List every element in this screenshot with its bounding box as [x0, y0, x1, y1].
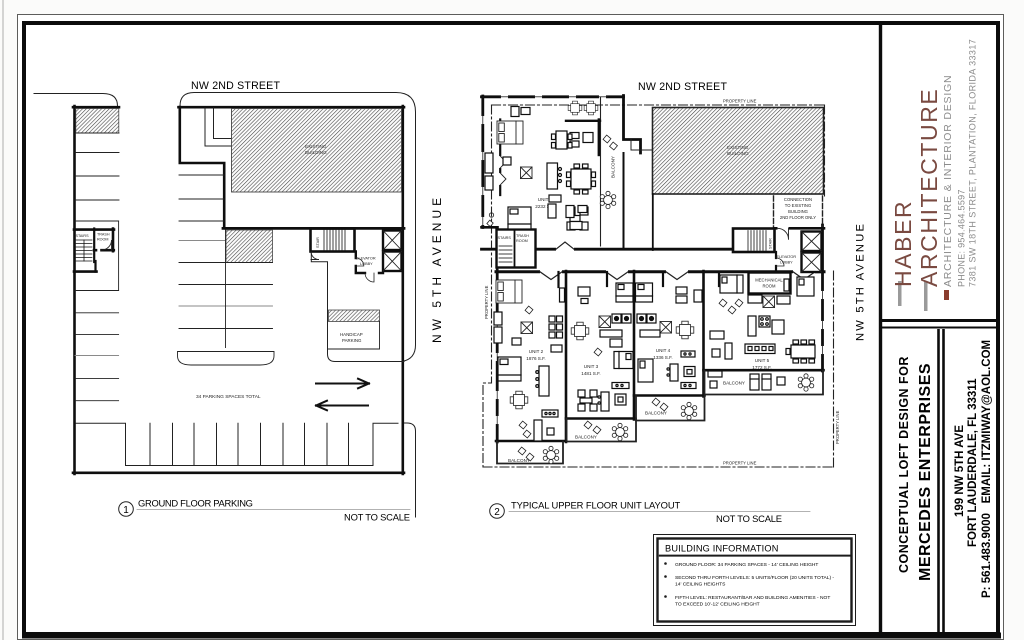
svg-text:ROOM: ROOM: [762, 284, 776, 289]
svg-text:NOT TO SCALE: NOT TO SCALE: [344, 512, 410, 523]
svg-text:199 NW 5TH AVE: 199 NW 5TH AVE: [954, 425, 966, 517]
svg-text:BUILDING: BUILDING: [727, 151, 749, 156]
svg-text:1336 S.F.: 1336 S.F.: [653, 355, 672, 360]
svg-text:2ND FLOOR ONLY: 2ND FLOOR ONLY: [780, 215, 816, 220]
svg-text:2: 2: [494, 507, 500, 518]
svg-text:7381 SW 18TH STREET, PLANTATIO: 7381 SW 18TH STREET, PLANTATION, FLORIDA…: [968, 39, 978, 287]
svg-text:P: 561.483.9000 EMAIL: ITZMI: P: 561.483.9000 EMAIL: ITZMIWAY@AOL.COM: [981, 340, 993, 598]
svg-text:ROOM: ROOM: [97, 238, 108, 242]
svg-text:STAIR: STAIR: [316, 237, 320, 248]
svg-text:SECOND THRU FORTH LEVELS: 5 UN: SECOND THRU FORTH LEVELS: 5 UNITS/FLOOR …: [675, 575, 834, 581]
svg-text:PROPERTY LINE: PROPERTY LINE: [723, 461, 757, 466]
svg-text:ELEVATOR: ELEVATOR: [356, 257, 376, 261]
svg-text:HANDICAP: HANDICAP: [340, 332, 363, 337]
svg-text:MECHANICAL: MECHANICAL: [755, 278, 783, 283]
svg-text:14' CEILING HEIGHTS: 14' CEILING HEIGHTS: [675, 581, 726, 587]
svg-text:1772 S.F.: 1772 S.F.: [752, 365, 771, 370]
svg-text:TO EXISTING: TO EXISTING: [785, 203, 811, 208]
svg-text:GROUND FLOOR PARKING: GROUND FLOOR PARKING: [138, 498, 253, 509]
svg-text:EXISTING: EXISTING: [727, 145, 749, 150]
svg-text:TO EXCEED 10'-12' CEILING HEIG: TO EXCEED 10'-12' CEILING HEIGHT: [675, 601, 760, 607]
svg-text:BALCONY: BALCONY: [723, 381, 745, 386]
svg-text:34 PARKING SPACES TOTAL: 34 PARKING SPACES TOTAL: [196, 394, 261, 400]
svg-text:UNIT 3: UNIT 3: [584, 364, 599, 369]
svg-text:FIFTH LEVEL: RESTAURANT/BAR AN: FIFTH LEVEL: RESTAURANT/BAR AND BUILDING…: [675, 595, 830, 601]
svg-text:1876 S.F.: 1876 S.F.: [526, 356, 545, 361]
svg-text:MERCEDES ENTERPRISES: MERCEDES ENTERPRISES: [917, 363, 934, 581]
svg-text:CONNECTION: CONNECTION: [784, 197, 812, 202]
svg-text:PROPERTY LINE: PROPERTY LINE: [723, 99, 757, 104]
svg-text:1481 S.F.: 1481 S.F.: [581, 371, 600, 376]
svg-text:NOT TO SCALE: NOT TO SCALE: [716, 513, 782, 524]
svg-text:BUILDING INFORMATION: BUILDING INFORMATION: [665, 544, 779, 554]
svg-text:LOBBY: LOBBY: [360, 262, 373, 266]
svg-text:NW 5TH AVENUE: NW 5TH AVENUE: [855, 222, 867, 341]
svg-text:NW 2ND STREET: NW 2ND STREET: [191, 80, 280, 92]
svg-text:STAIR: STAIR: [769, 238, 773, 249]
svg-text:TRASH: TRASH: [516, 234, 529, 238]
svg-text:STAIRS: STAIRS: [76, 234, 90, 238]
svg-text:FORT LAUDERDALE, FL 33311: FORT LAUDERDALE, FL 33311: [967, 378, 979, 547]
svg-text:1: 1: [123, 505, 129, 516]
svg-text:STAIRS: STAIRS: [498, 236, 512, 240]
svg-text:EXISTING: EXISTING: [305, 144, 327, 149]
svg-text:PHONE: 954.464.5597: PHONE: 954.464.5597: [957, 189, 967, 287]
svg-text:ARCHITECTURE & INTERIOR DESIGN: ARCHITECTURE & INTERIOR DESIGN: [942, 75, 954, 287]
svg-text:PROPERTY LINE: PROPERTY LINE: [835, 410, 840, 444]
svg-text:TYPICAL UPPER FLOOR UNIT LAYOU: TYPICAL UPPER FLOOR UNIT LAYOUT: [511, 500, 681, 511]
svg-text:PROPERTY LINE: PROPERTY LINE: [484, 285, 489, 319]
svg-text:BALCONY: BALCONY: [575, 435, 597, 440]
svg-text:BUILDING: BUILDING: [305, 150, 327, 155]
svg-text:GROUND FLOOR: 34 PARKING SPACE: GROUND FLOOR: 34 PARKING SPACES - 14' CE…: [675, 562, 818, 568]
svg-text:HABER: HABER: [890, 200, 916, 287]
svg-text:UNIT 5: UNIT 5: [755, 358, 770, 363]
svg-text:BALCONY: BALCONY: [611, 156, 616, 178]
svg-text:BUILDING: BUILDING: [788, 209, 808, 214]
svg-text:CONCEPTUAL LOFT DESIGN FOR: CONCEPTUAL LOFT DESIGN FOR: [897, 356, 911, 573]
svg-text:NW 2ND STREET: NW 2ND STREET: [638, 81, 727, 93]
svg-text:BALCONY: BALCONY: [645, 411, 667, 416]
svg-text:ARCHITECTURE: ARCHITECTURE: [916, 88, 942, 287]
svg-text:UNIT 2: UNIT 2: [529, 349, 544, 354]
svg-text:TRASH: TRASH: [97, 233, 110, 237]
svg-text:PARKING: PARKING: [342, 338, 362, 343]
svg-text:BALCONY: BALCONY: [508, 458, 530, 463]
svg-text:NW 5TH AVENUE: NW 5TH AVENUE: [430, 194, 444, 343]
svg-text:UNIT 4: UNIT 4: [656, 348, 671, 353]
svg-text:ROOM: ROOM: [516, 239, 528, 243]
svg-text:LOBBY: LOBBY: [780, 261, 793, 265]
svg-text:ELEVATOR: ELEVATOR: [777, 255, 797, 259]
